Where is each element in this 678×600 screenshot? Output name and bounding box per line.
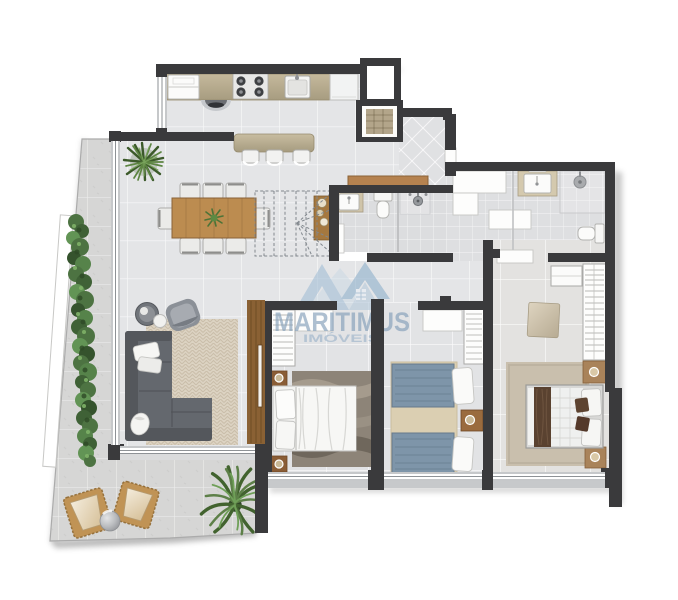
svg-text:IMÓVEIS: IMÓVEIS bbox=[303, 332, 380, 345]
